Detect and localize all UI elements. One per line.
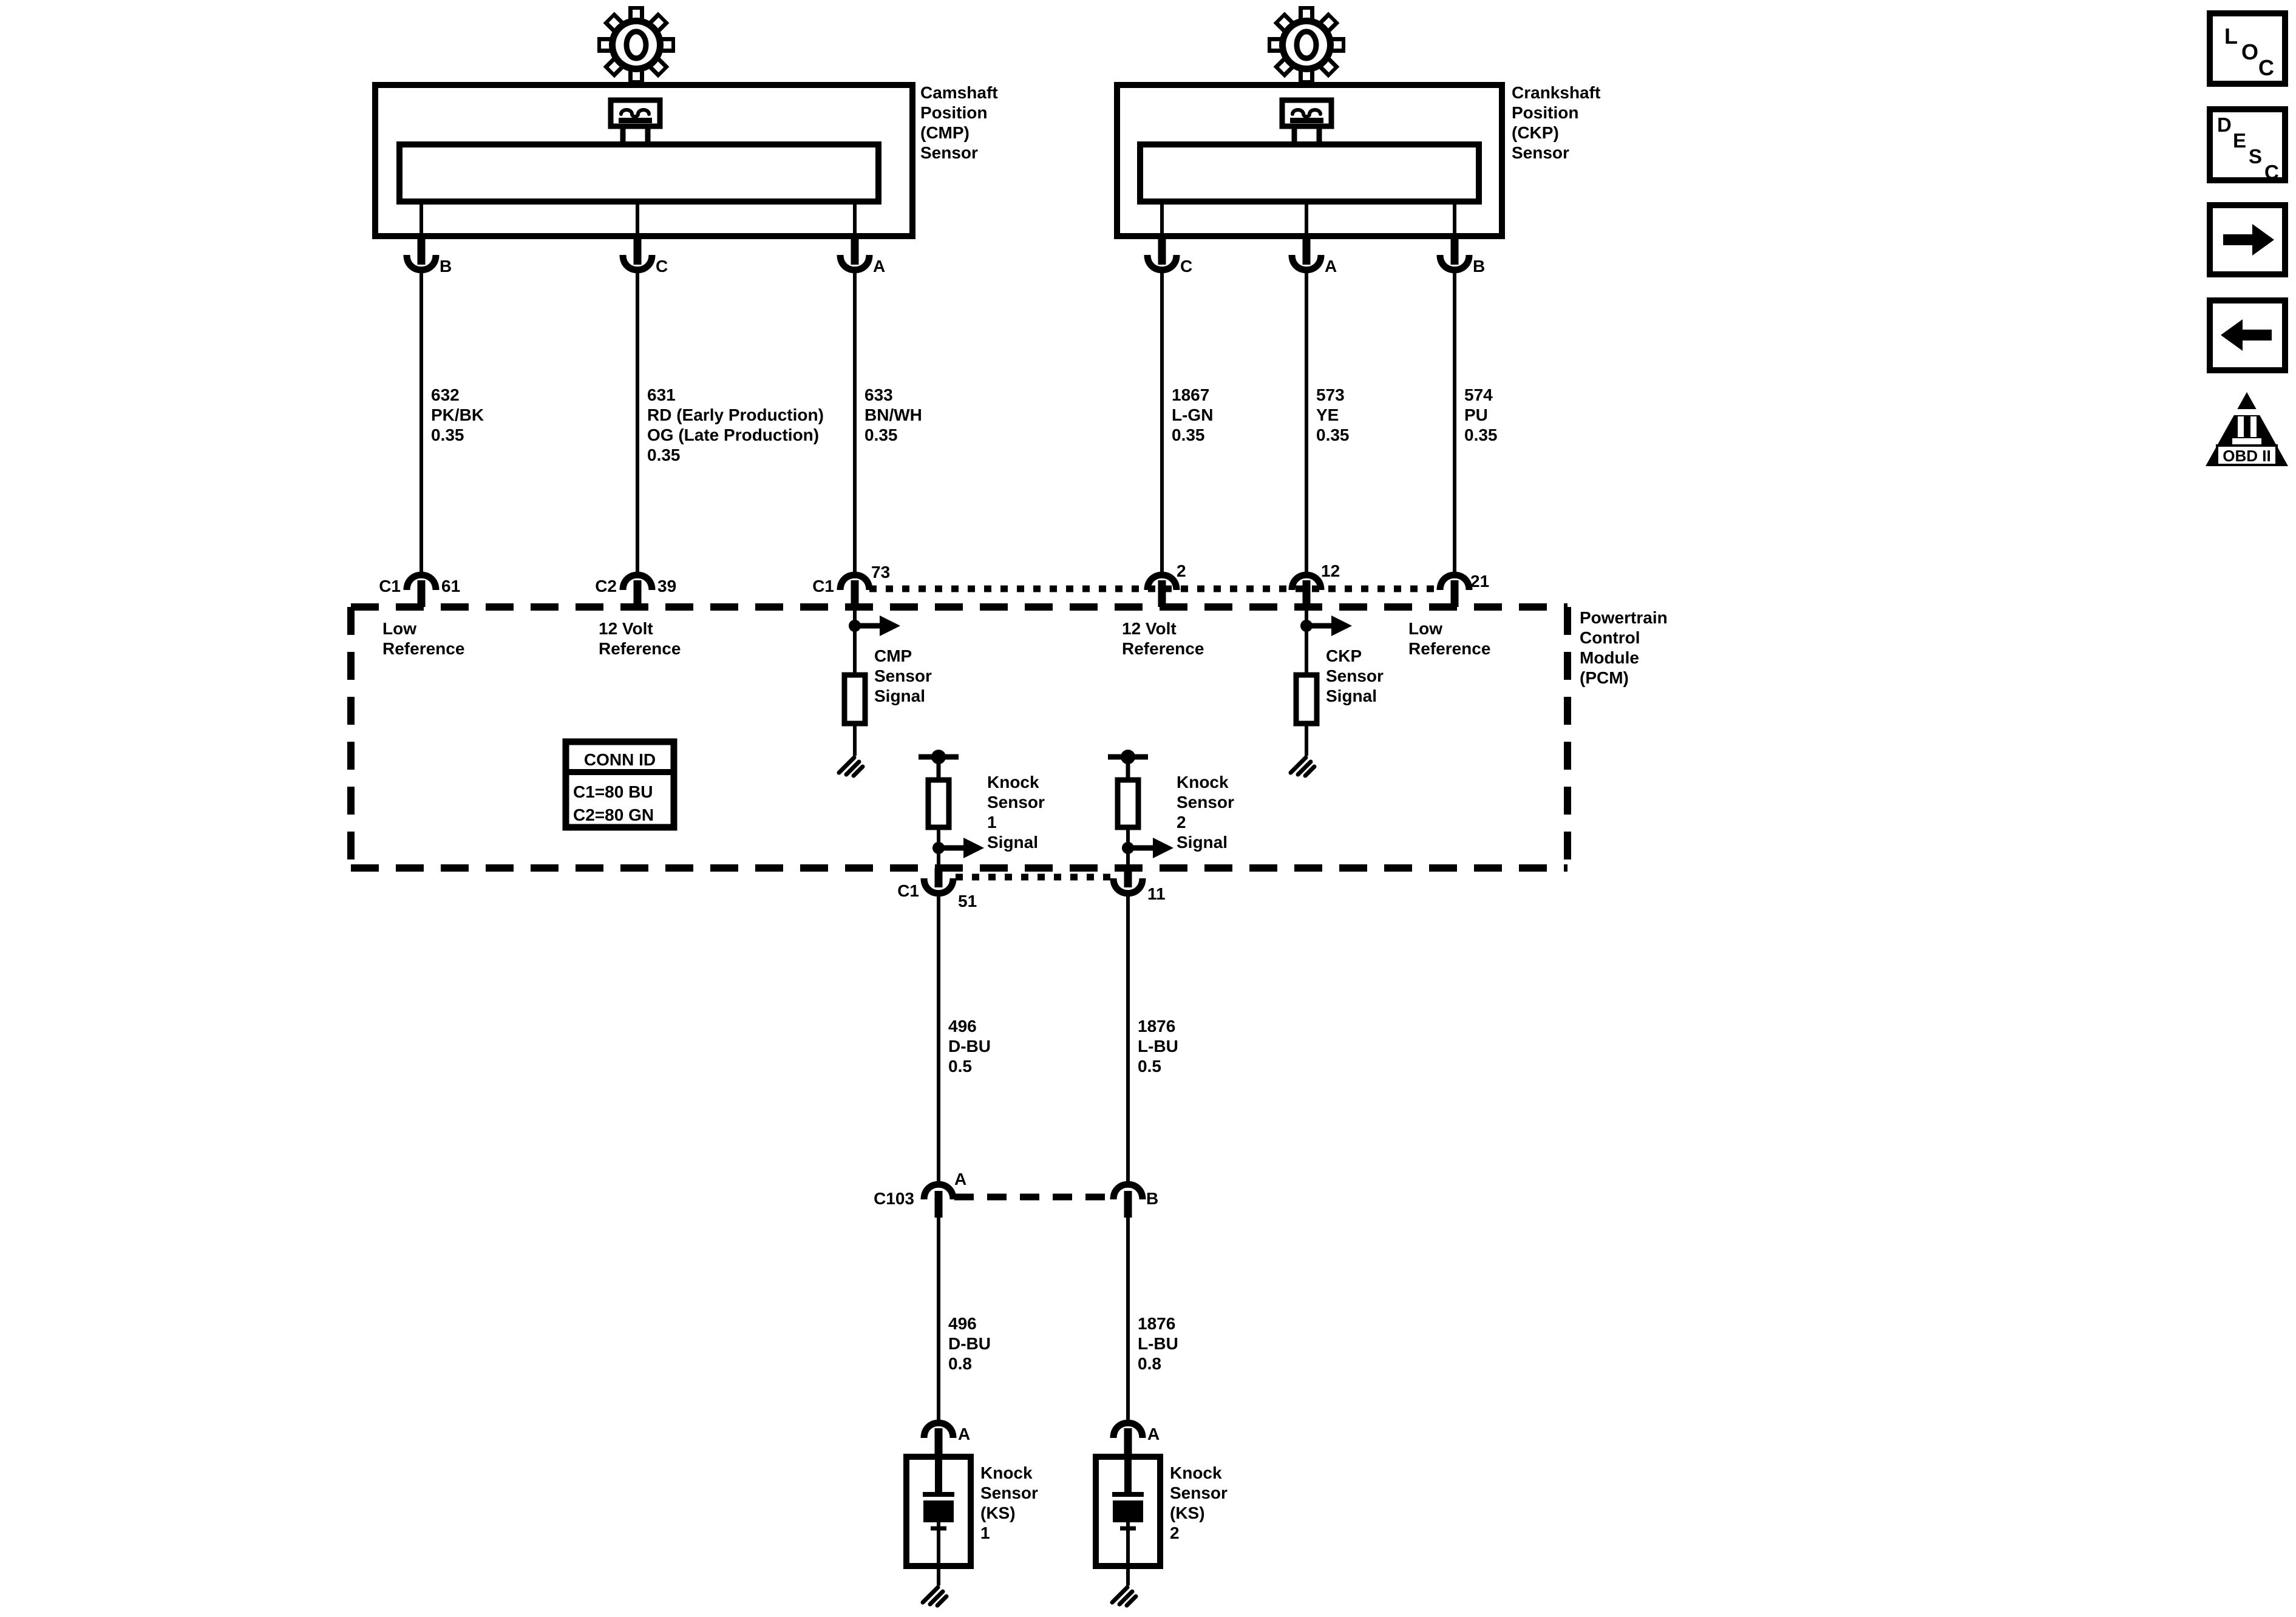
pcm-boundary [351, 607, 1567, 868]
ks-pin-letter: A [1147, 1425, 1160, 1443]
ground-icon [839, 758, 863, 776]
svg-text:Reference: Reference [599, 639, 681, 658]
svg-text:(KS): (KS) [1170, 1503, 1205, 1522]
wire-label: BN/WH [864, 405, 922, 424]
wire-label: 0.35 [864, 425, 898, 444]
svg-text:D-BU: D-BU [948, 1334, 991, 1353]
resistor-symbol [1118, 780, 1138, 827]
ckp-sensor-assembly: C A B Crankshaft Position (CKP) Sensor [1117, 6, 1600, 276]
cmp-tang-bar [619, 118, 652, 123]
svg-text:Sensor: Sensor [1326, 666, 1384, 685]
desc-button[interactable]: D E S C [2210, 109, 2285, 183]
pcm-connector-id: C1 [379, 577, 401, 595]
pcm-pin-number: 39 [657, 577, 676, 595]
svg-text:1876: 1876 [1138, 1017, 1175, 1036]
pcm-pin-number: 51 [958, 892, 977, 910]
wire-label: 0.35 [431, 425, 464, 444]
svg-text:(CMP): (CMP) [920, 123, 970, 142]
pcm-pin-number: 2 [1177, 561, 1186, 580]
crankshaft-gear-icon [1268, 6, 1345, 84]
ckp-sensor-element [1140, 144, 1479, 202]
svg-text:(KS): (KS) [980, 1503, 1016, 1522]
c103-label: C103 [874, 1189, 914, 1208]
svg-text:Low: Low [1408, 619, 1442, 638]
svg-text:S: S [2249, 145, 2262, 168]
wire-label: 0.35 [647, 446, 681, 464]
wire-label: OG (Late Production) [647, 425, 819, 444]
svg-text:Sensor: Sensor [874, 666, 932, 685]
ckp-pin-letter: C [1180, 257, 1192, 276]
svg-text:(PCM): (PCM) [1580, 668, 1629, 687]
wire-label: RD (Early Production) [647, 405, 824, 424]
svg-text:Reference: Reference [382, 639, 464, 658]
svg-text:1876: 1876 [1138, 1314, 1175, 1333]
svg-text:Powertrain: Powertrain [1580, 608, 1668, 627]
wire-label: 632 [431, 385, 460, 404]
svg-text:Module: Module [1580, 648, 1639, 667]
cmp-sensor-assembly: B C A Camshaft Position (CMP) Sensor [375, 6, 998, 276]
knock-sensor-1: A Knock Sensor (KS) 1 [906, 1423, 1038, 1605]
svg-text:2: 2 [1170, 1524, 1180, 1542]
ground-icon [1291, 758, 1314, 776]
svg-text:CMP: CMP [874, 646, 912, 665]
svg-text:E: E [2233, 129, 2246, 152]
pcm-pin-number: 61 [441, 577, 460, 595]
signal-arrow-icon [1331, 615, 1352, 636]
wire-label: 633 [864, 385, 893, 404]
wire-label: L-GN [1172, 405, 1213, 424]
ground-icon [923, 1587, 946, 1605]
svg-text:0.8: 0.8 [1138, 1354, 1161, 1373]
svg-text:D-BU: D-BU [948, 1037, 991, 1056]
harness-wires [421, 269, 1455, 575]
conn-id-title: CONN ID [584, 750, 656, 769]
ckp-pin-letter: B [1473, 257, 1485, 276]
conn-id-row: C1=80 BU [573, 782, 653, 801]
wire-label: 0.35 [1464, 425, 1498, 444]
ground-icon [1112, 1587, 1136, 1605]
ckp-tang-bar [1290, 118, 1323, 123]
wire-label: 0.35 [1172, 425, 1205, 444]
back-button[interactable] [2210, 300, 2285, 370]
svg-text:Reference: Reference [1122, 639, 1204, 658]
resistor-symbol [1296, 675, 1317, 724]
wiring-diagram-canvas: B C A Camshaft Position (CMP) Sensor [0, 0, 2296, 1617]
svg-text:L-BU: L-BU [1138, 1334, 1178, 1353]
camshaft-gear-icon [597, 6, 675, 84]
svg-text:Sensor: Sensor [980, 1483, 1038, 1502]
cmp-sensor-element [399, 144, 878, 202]
svg-text:CKP: CKP [1326, 646, 1362, 665]
obd2-badge[interactable]: OBD II [2206, 392, 2288, 466]
conn-id-box: CONN ID C1=80 BU C2=80 GN [566, 742, 674, 827]
svg-text:Position: Position [1512, 103, 1578, 122]
svg-text:O: O [2241, 39, 2258, 64]
svg-text:0.5: 0.5 [948, 1057, 972, 1076]
wire-label: 574 [1464, 385, 1493, 404]
svg-text:C: C [2258, 55, 2274, 80]
svg-text:1: 1 [987, 813, 997, 832]
pcm-pin-number: 12 [1321, 561, 1340, 580]
wire-label: PU [1464, 405, 1488, 424]
ckp-pin-letter: A [1325, 257, 1337, 276]
svg-text:Signal: Signal [1326, 686, 1377, 705]
svg-text:Low: Low [382, 619, 416, 638]
resistor-symbol [844, 675, 865, 724]
svg-text:D: D [2217, 114, 2232, 136]
svg-text:Signal: Signal [1177, 833, 1228, 852]
knock-sensor-2: A Knock Sensor (KS) 2 [1096, 1423, 1228, 1605]
svg-text:C: C [2264, 161, 2279, 183]
cmp-pin-letter: C [656, 257, 668, 276]
cmp-pin-letter: A [873, 257, 885, 276]
c103-pin-letter: B [1146, 1189, 1158, 1208]
svg-text:496: 496 [948, 1017, 977, 1036]
knock-wire-labels-lower: 496 D-BU 0.8 1876 L-BU 0.8 [948, 1314, 1178, 1373]
pcm-pin-number: 11 [1147, 884, 1166, 903]
svg-text:0.8: 0.8 [948, 1354, 972, 1373]
wire-label: 573 [1316, 385, 1345, 404]
pcm-name-label: Powertrain Control Module (PCM) [1580, 608, 1668, 687]
svg-text:Sensor: Sensor [1512, 143, 1569, 162]
signal-arrow-icon [963, 838, 984, 858]
svg-text:Crankshaft: Crankshaft [1512, 83, 1600, 102]
svg-text:1: 1 [980, 1524, 990, 1542]
wiring-diagram-page: B C A Camshaft Position (CMP) Sensor [0, 0, 2296, 1617]
wire-label: PK/BK [431, 405, 484, 424]
ks1-signal-circuit: Knock Sensor 1 Signal [919, 750, 1045, 868]
knock-wire-labels-upper: 496 D-BU 0.5 1876 L-BU 0.5 [948, 1017, 1178, 1076]
wire-label: YE [1316, 405, 1339, 424]
pcm-function-labels: Low Reference 12 Volt Reference CMP Sens… [382, 619, 1490, 705]
svg-text:Reference: Reference [1408, 639, 1490, 658]
c103-pin-letter: A [954, 1170, 966, 1188]
svg-text:Knock: Knock [1170, 1463, 1222, 1482]
svg-text:Signal: Signal [874, 686, 925, 705]
loc-button[interactable]: L O C [2210, 13, 2285, 84]
next-button[interactable] [2210, 205, 2285, 274]
svg-text:L-BU: L-BU [1138, 1037, 1178, 1056]
svg-text:12 Volt: 12 Volt [599, 619, 653, 638]
svg-text:Signal: Signal [987, 833, 1038, 852]
pcm-connector-id: C2 [595, 577, 617, 595]
pcm-connector-id: C1 [897, 881, 919, 900]
cmp-pin-letter: B [440, 257, 452, 276]
signal-arrow-icon [1153, 838, 1173, 858]
svg-text:2: 2 [1177, 813, 1186, 832]
svg-text:Sensor: Sensor [1170, 1483, 1228, 1502]
c103-connector-row: C103 A B [874, 1170, 1158, 1218]
sidebar: L O C D E S C [2206, 13, 2288, 466]
ks-pin-letter: A [958, 1425, 970, 1443]
ks-piezo-element [923, 1500, 954, 1522]
svg-text:0.5: 0.5 [1138, 1057, 1161, 1076]
svg-text:12 Volt: 12 Volt [1122, 619, 1177, 638]
svg-text:496: 496 [948, 1314, 977, 1333]
wire-label: 0.35 [1316, 425, 1350, 444]
svg-text:Knock: Knock [980, 1463, 1033, 1482]
ks-piezo-element [1113, 1500, 1143, 1522]
svg-text:Control: Control [1580, 628, 1640, 647]
svg-text:Knock: Knock [1177, 773, 1229, 792]
wire-label: 1867 [1172, 385, 1209, 404]
svg-text:Knock: Knock [987, 773, 1039, 792]
svg-text:Sensor: Sensor [1177, 793, 1234, 812]
resistor-symbol [928, 780, 949, 827]
svg-text:Sensor: Sensor [920, 143, 978, 162]
svg-text:(CKP): (CKP) [1512, 123, 1559, 142]
cmp-sensor-label: Camshaft Position (CMP) Sensor [920, 83, 998, 162]
svg-text:Camshaft: Camshaft [920, 83, 998, 102]
obd2-label: OBD II [2223, 447, 2271, 465]
pcm-pin-number: 21 [1470, 572, 1489, 591]
pcm-top-connector-row: C1 61 C2 39 C1 73 2 12 21 [379, 561, 1489, 607]
ckp-sensor-label: Crankshaft Position (CKP) Sensor [1512, 83, 1600, 162]
conn-id-row: C2=80 GN [573, 805, 654, 824]
signal-arrow-icon [880, 615, 900, 636]
pcm-pin-number: 73 [871, 563, 890, 581]
svg-text:Sensor: Sensor [987, 793, 1045, 812]
ks2-signal-circuit: Knock Sensor 2 Signal [1108, 750, 1234, 868]
pcm-connector-id: C1 [812, 577, 834, 595]
svg-text:Position: Position [920, 103, 987, 122]
wire-labels: 632 PK/BK 0.35 631 RD (Early Production)… [431, 385, 1498, 464]
svg-text:L: L [2224, 24, 2238, 49]
wire-label: 631 [647, 385, 676, 404]
